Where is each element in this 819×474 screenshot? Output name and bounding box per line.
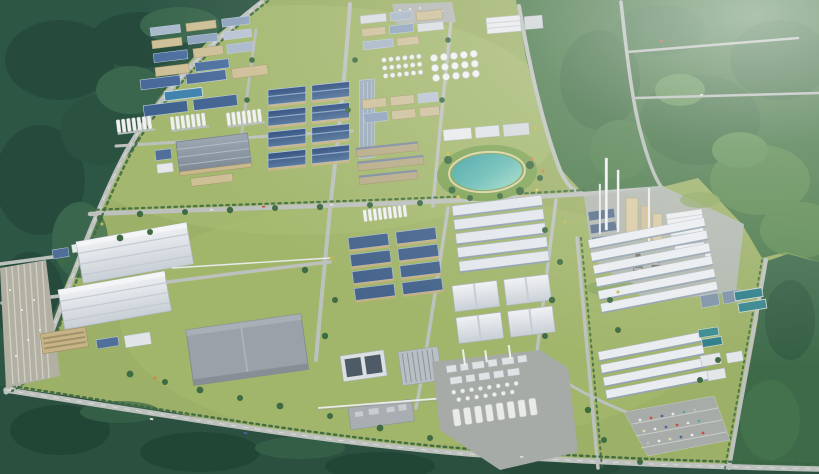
atmospheric-haze: [0, 0, 819, 474]
industrial-park-scene: [0, 0, 819, 474]
aerial-render: [0, 0, 819, 474]
